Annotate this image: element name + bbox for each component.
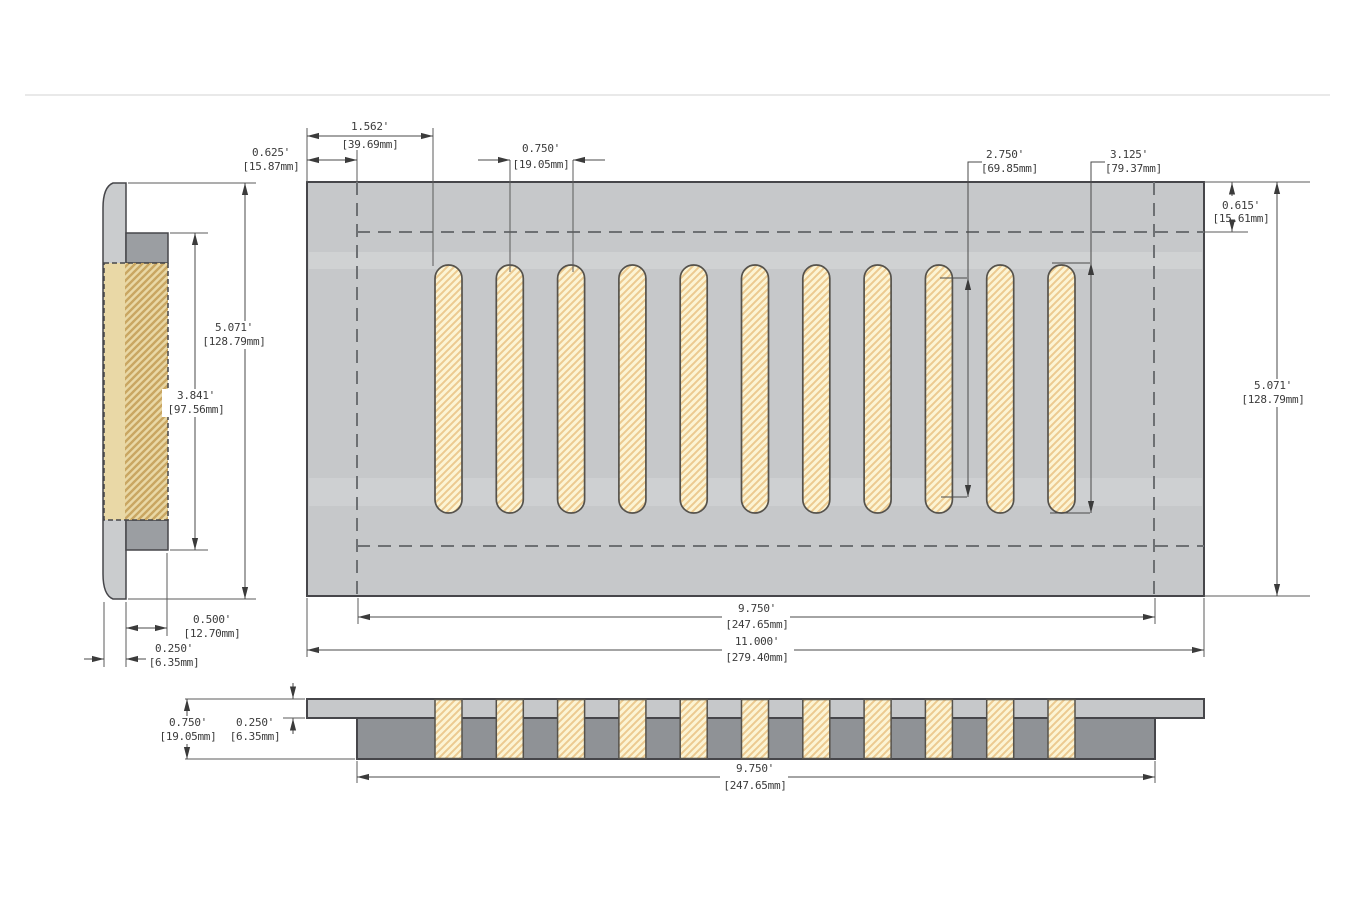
side-view: 5.071' [128.79mm] 3.841' [97.56mm] 0.500…	[84, 183, 272, 669]
vent-slot	[558, 265, 585, 513]
dim-slot-pitch-mm: [19.05mm]	[513, 158, 570, 171]
dim-edge-offset-mm: [15.87mm]	[243, 160, 300, 173]
dim-sec-body-in: 9.750'	[736, 762, 774, 775]
vent-slot	[864, 265, 891, 513]
dim-overall-in: 11.000'	[735, 635, 779, 648]
dim-side-plate-mm: [6.35mm]	[149, 656, 200, 669]
section-slot	[680, 700, 707, 759]
side-top-flange	[126, 233, 168, 263]
vent-slot	[803, 265, 830, 513]
dim-sec-plate-in: 0.250'	[236, 716, 274, 729]
dim-opening-in: 9.750'	[738, 602, 776, 615]
section-slot	[864, 700, 891, 759]
dim-top-offset-in: 0.615'	[1222, 199, 1260, 212]
dim-side-height-mm: [128.79mm]	[202, 335, 265, 348]
dim-overall-mm: [279.40mm]	[725, 651, 788, 664]
vent-slot	[435, 265, 462, 513]
dim-sec-body-mm: [247.65mm]	[723, 779, 786, 792]
drawing-canvas: 5.071' [128.79mm] 3.841' [97.56mm] 0.500…	[0, 0, 1350, 900]
dim-sec-total-in: 0.750'	[169, 716, 207, 729]
dim-slot-straight-in: 2.750'	[986, 148, 1024, 161]
vent-slot	[987, 265, 1014, 513]
section-slot	[1048, 700, 1075, 759]
top-view: 0.625' [15.87mm] 1.562' [39.69mm] 0.750'…	[243, 120, 1314, 664]
dim-slot-pitch-in: 0.750'	[522, 142, 560, 155]
dim-first-slot-in: 1.562'	[351, 120, 389, 133]
section-view: 0.750' [19.05mm] 0.250' [6.35mm] 9.750' …	[152, 683, 1204, 792]
section-slot	[435, 700, 462, 759]
dim-side-inner-in: 3.841'	[177, 389, 215, 402]
vent-slot	[1048, 265, 1075, 513]
section-slot	[803, 700, 830, 759]
section-slot	[742, 700, 769, 759]
vent-slot	[742, 265, 769, 513]
dim-top-height-mm: [128.79mm]	[1241, 393, 1304, 406]
section-slot	[925, 700, 952, 759]
vent-slot	[496, 265, 523, 513]
dim-side-inner-mm: [97.56mm]	[168, 403, 225, 416]
dim-side-depth-in: 0.500'	[193, 613, 231, 626]
dim-sec-total-mm: [19.05mm]	[160, 730, 217, 743]
dim-slot-length-in: 3.125'	[1110, 148, 1148, 161]
section-slot	[496, 700, 523, 759]
dim-edge-offset-in: 0.625'	[252, 146, 290, 159]
side-bottom-flange	[126, 520, 168, 550]
dim-side-plate-in: 0.250'	[155, 642, 193, 655]
dim-first-slot-mm: [39.69mm]	[342, 138, 399, 151]
side-slot-face	[104, 263, 125, 520]
section-slot	[619, 700, 646, 759]
section-slot	[558, 700, 585, 759]
section-slot	[987, 700, 1014, 759]
dim-top-height-in: 5.071'	[1254, 379, 1292, 392]
vent-slot	[619, 265, 646, 513]
dim-sec-plate-mm: [6.35mm]	[230, 730, 281, 743]
side-damper-hatch	[125, 263, 168, 520]
vent-slot	[680, 265, 707, 513]
dim-opening-mm: [247.65mm]	[725, 618, 788, 631]
vent-slot	[925, 265, 952, 513]
dim-side-height-in: 5.071'	[215, 321, 253, 334]
vent-dimension-drawing: 5.071' [128.79mm] 3.841' [97.56mm] 0.500…	[0, 0, 1350, 900]
dim-side-depth-mm: [12.70mm]	[184, 627, 241, 640]
dim-slot-length-mm: [79.37mm]	[1105, 162, 1162, 175]
dim-top-offset-mm: [15.61mm]	[1213, 212, 1270, 225]
dim-slot-straight-mm: [69.85mm]	[981, 162, 1038, 175]
